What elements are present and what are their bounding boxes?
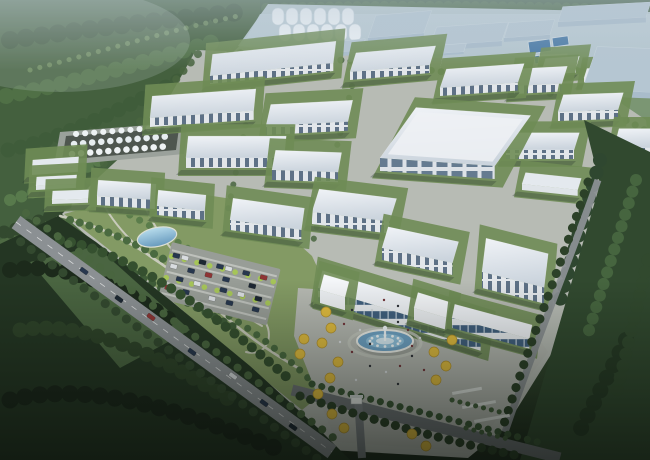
building-roof-block (272, 150, 342, 172)
building-roof-block (266, 100, 353, 126)
building-roof-block (558, 93, 623, 112)
dusk-vignette (0, 280, 650, 460)
building-roof-shed (52, 190, 89, 200)
industrial-park-scene (0, 0, 650, 460)
aerial-render (0, 0, 650, 460)
